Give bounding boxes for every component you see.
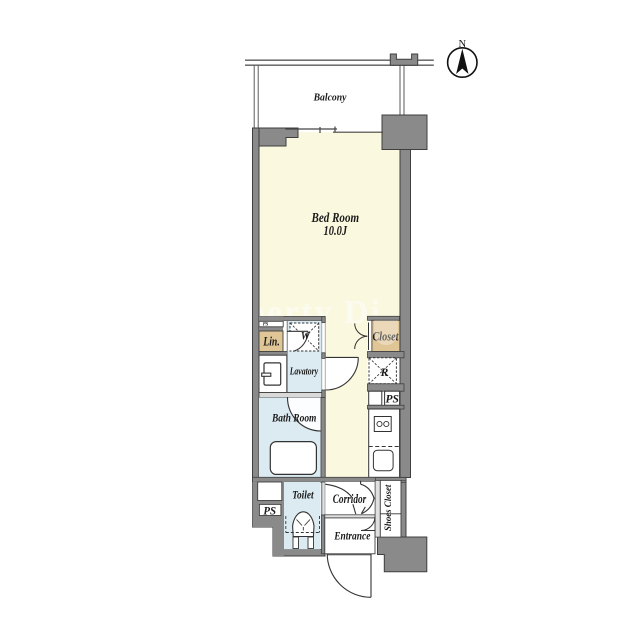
svg-text:PS: PS [263, 323, 269, 328]
svg-text:Shoes Closet: Shoes Closet [384, 484, 394, 531]
svg-text:PS: PS [385, 393, 398, 405]
svg-text:Lin.: Lin. [262, 334, 279, 348]
svg-text:10.0J: 10.0J [324, 223, 348, 238]
svg-text:N: N [458, 39, 466, 50]
svg-text:W: W [301, 330, 311, 342]
svg-text:PS: PS [263, 503, 276, 517]
svg-text:R: R [380, 367, 389, 379]
svg-text:Bath Room: Bath Room [271, 412, 316, 424]
svg-text:Toilet: Toilet [292, 487, 314, 501]
svg-text:Balcony: Balcony [313, 91, 347, 103]
svg-text:Lavatory: Lavatory [289, 367, 318, 378]
